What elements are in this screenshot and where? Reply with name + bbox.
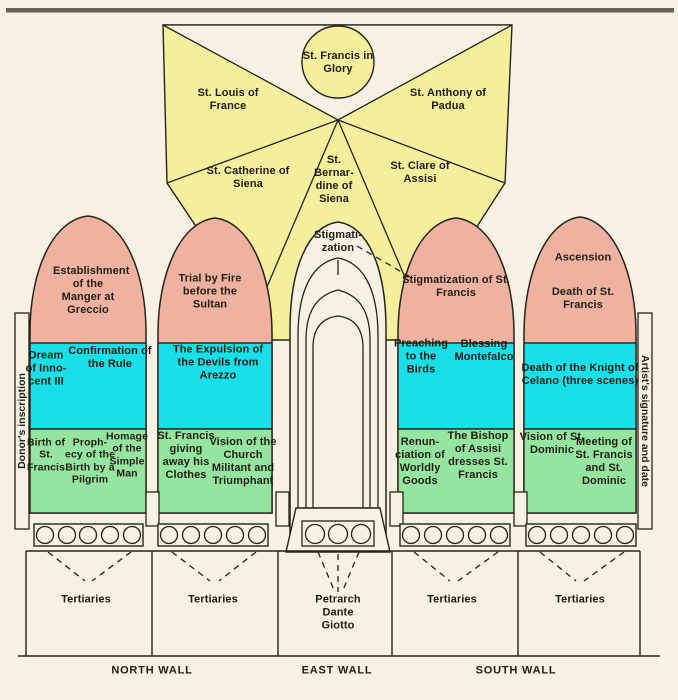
medallion-circle: [425, 527, 442, 544]
label-north2-lunette: Trial by Fire before the Sultan: [172, 273, 248, 312]
medallion-circle: [80, 527, 97, 544]
tertiaries-pointer-line: [219, 552, 256, 581]
label-north1-low-1: Birth of St. Francis: [25, 436, 67, 473]
tertiaries-pointer-line: [414, 552, 450, 581]
label-donors-inscription: Donor's inscription: [16, 373, 28, 469]
label-poets: Petrarch Dante Giotto: [309, 594, 367, 633]
medallion-circle: [59, 527, 76, 544]
label-north1-lunette: Establishment of the Manger at Greccio: [53, 265, 123, 317]
tertiaries-pointer-line: [584, 552, 624, 581]
label-north1-mid-right: Confirmation of the Rule: [66, 345, 154, 371]
label-east-wall: EAST WALL: [287, 665, 387, 678]
medallion-circle: [205, 527, 222, 544]
medallion-circle: [403, 527, 420, 544]
label-south2-low-right: Meeting of St. Francis and St. Dominic: [572, 436, 636, 488]
label-st-louis: St. Louis of France: [187, 87, 269, 113]
tertiaries-pointer-line: [48, 552, 85, 581]
medallion-circle: [529, 527, 546, 544]
medallion-circle: [183, 527, 200, 544]
label-south1-lunette: Stigmatization of St. Francis: [397, 274, 515, 300]
tertiaries-pointer-line: [172, 552, 210, 581]
label-north2-low-right: Vision of the Church Militant and Triump…: [209, 436, 277, 488]
label-st-clare: St. Clare of Assisi: [384, 160, 456, 186]
medallion-circle: [37, 527, 54, 544]
label-st-bernardine: St. Bernar-dine of Siena: [310, 154, 358, 206]
label-glory: St. Francis in Glory: [300, 50, 376, 76]
label-south2-mid: Death of the Knight of Celano (three sce…: [519, 362, 641, 388]
label-south-wall: SOUTH WALL: [461, 665, 571, 678]
pilaster-capital: [390, 492, 403, 526]
label-south1-low-right: The Bishop of Assisi dresses St. Francis: [445, 430, 511, 482]
medallion-circle: [306, 525, 325, 544]
label-tertiaries-south2: Tertiaries: [540, 594, 620, 607]
label-north-wall: NORTH WALL: [97, 665, 207, 678]
tertiaries-pointer-line: [540, 552, 576, 581]
label-north2-low-left: St. Francis giving away his Clothes: [156, 430, 216, 482]
medallion-circle: [329, 525, 348, 544]
label-north1-low-3: Homage of the Simple Man: [104, 430, 150, 480]
label-artists-signature-date: Artist's signature and date: [639, 355, 651, 487]
medallion-circle: [595, 527, 612, 544]
label-st-anthony: St. Anthony of Padua: [405, 87, 491, 113]
poets-pointer-line: [318, 552, 334, 590]
label-tertiaries-north1: Tertiaries: [46, 594, 126, 607]
window-arch-inner: [313, 316, 363, 510]
medallion-circle: [227, 527, 244, 544]
label-south1-mid-right: Blessing Montefalco: [444, 338, 524, 364]
label-tertiaries-south1: Tertiaries: [412, 594, 492, 607]
pilaster-capital: [276, 492, 289, 526]
label-south2-death: Death of St. Francis: [541, 286, 625, 312]
medallion-circle: [249, 527, 266, 544]
label-st-catherine: St. Catherine of Siena: [201, 165, 295, 191]
east-window: [286, 222, 390, 552]
label-south2-ascension: Ascension: [541, 252, 625, 265]
poets-pointer-line: [343, 552, 359, 590]
medallion-circle: [573, 527, 590, 544]
medallion-circle: [551, 527, 568, 544]
fresco-scheme-diagram: St. Francis in Glory St. Louis of France…: [0, 0, 678, 700]
pilaster-capital: [146, 492, 159, 526]
medallion-circle: [447, 527, 464, 544]
label-south1-mid-left: Preaching to the Birds: [392, 338, 450, 377]
medallion-circle: [491, 527, 508, 544]
top-border-line: [6, 8, 674, 13]
tertiaries-pointer-line: [92, 552, 131, 581]
medallion-circle: [102, 527, 119, 544]
label-north2-mid: The Expulsion of the Devils from Arezzo: [164, 344, 272, 383]
label-south1-low-left: Renun-ciation of Worldly Goods: [392, 436, 448, 488]
label-north1-mid-left: Dream of Inno-cent III: [23, 350, 69, 389]
pilaster-capital: [514, 492, 527, 526]
medallion-circle: [617, 527, 634, 544]
label-window-stigmatization: Stigmati-zation: [306, 229, 370, 255]
medallion-circle: [124, 527, 141, 544]
label-tertiaries-north2: Tertiaries: [173, 594, 253, 607]
medallion-circle: [469, 527, 486, 544]
medallion-circle: [161, 527, 178, 544]
medallion-circle: [352, 525, 371, 544]
tertiaries-pointer-line: [458, 552, 498, 581]
